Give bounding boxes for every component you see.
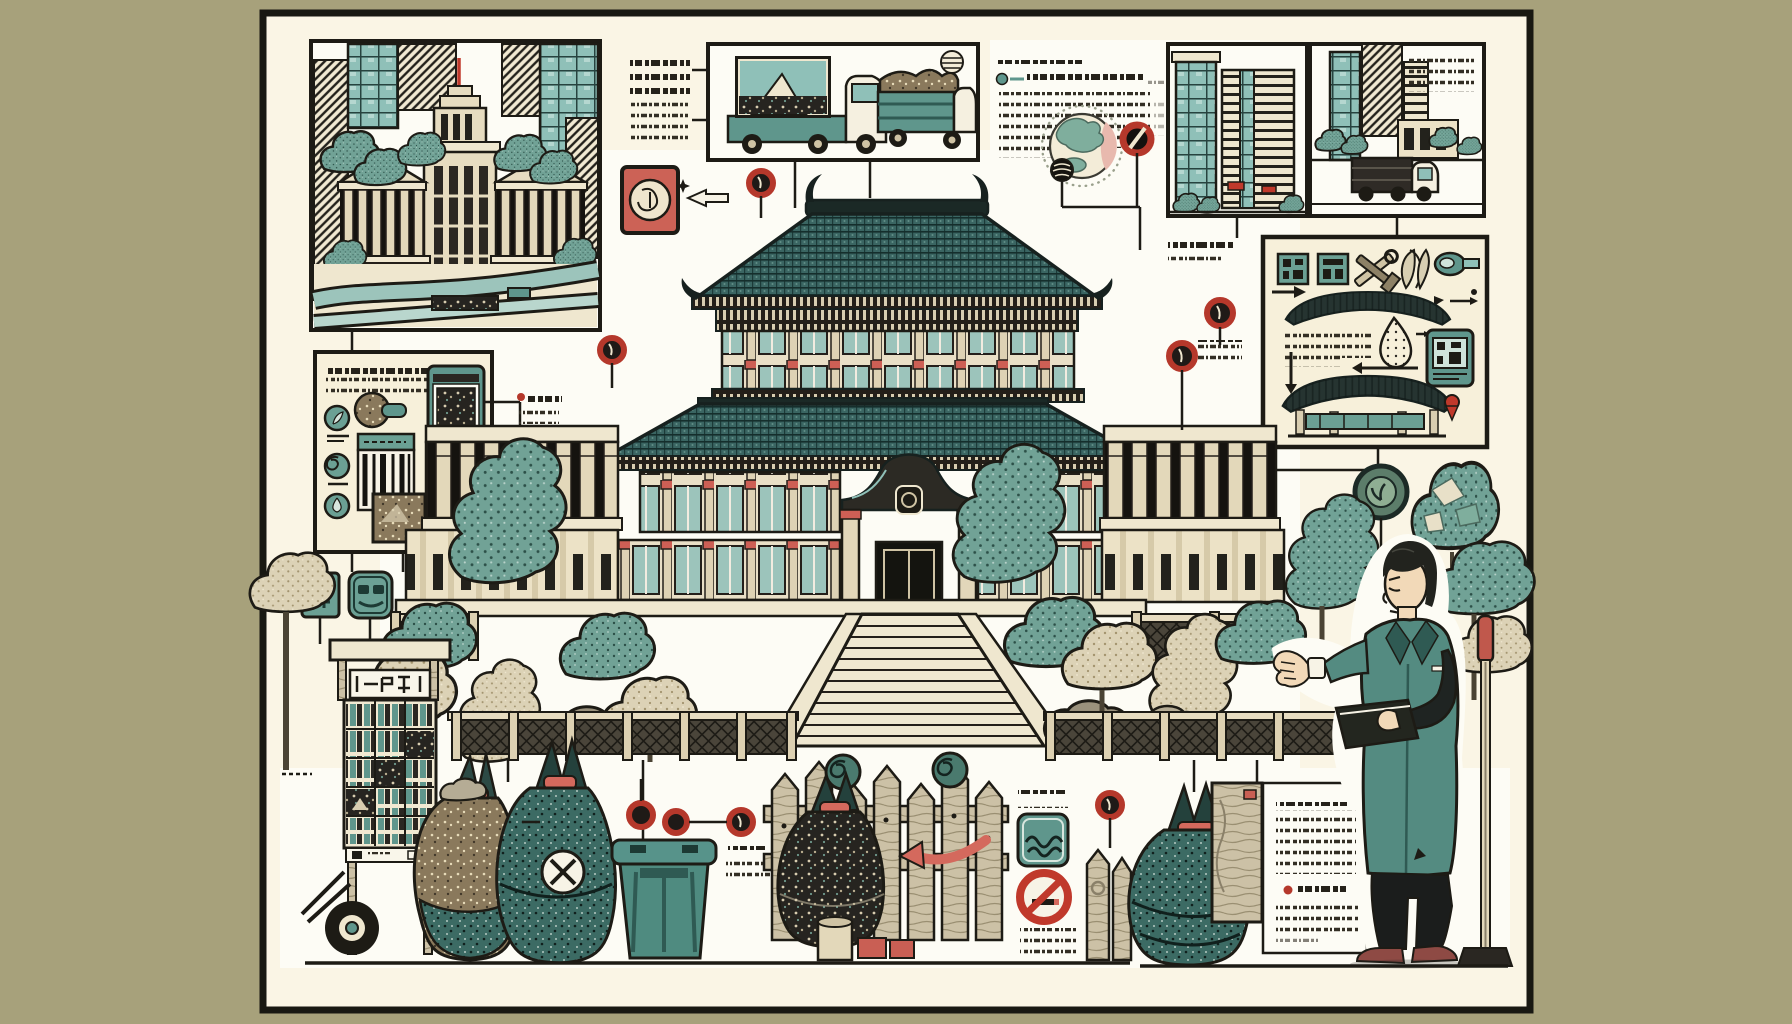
cuff: [1308, 658, 1325, 678]
picket-pair: [1087, 850, 1131, 960]
qr-device-icon: [1427, 330, 1473, 386]
poster-stage: Illustrated infographic poster: East Asi…: [0, 0, 1792, 1024]
leaf-circle-icon: [325, 406, 349, 441]
terrace-wall-left: [614, 540, 840, 600]
marker-ring-icon: [665, 811, 687, 833]
teal-stamp-icon: [1318, 254, 1348, 284]
lower-window-row-left: [640, 472, 840, 532]
office-buildings-panel: [1168, 44, 1307, 216]
panel-caption: [1408, 56, 1474, 92]
median-debris: [432, 296, 498, 310]
stand-base: [1458, 948, 1512, 966]
no-smoking-icon: [1020, 873, 1068, 921]
spiral-sign-icon: [349, 572, 392, 618]
roads: [314, 264, 598, 327]
crest-medallion: [896, 486, 922, 514]
teal-stamp-icon: [1278, 254, 1308, 284]
garbage-truck-panel: [708, 44, 978, 160]
kiosk-roof: [330, 640, 450, 660]
city-government-panel: [311, 41, 600, 330]
shop-sign: [1262, 186, 1276, 193]
cart-wheel: [325, 901, 379, 955]
red-tag: [1244, 790, 1256, 799]
process-caption: [1284, 328, 1372, 358]
street-truck-panel: [1310, 44, 1484, 216]
wave-sign-icon: [1018, 814, 1068, 866]
red-block: [858, 938, 886, 958]
text-card: [1263, 783, 1367, 953]
drop-circle-icon: [325, 494, 349, 518]
panel-heading: [1168, 238, 1234, 250]
small-truck: [1352, 158, 1438, 202]
bracket-frieze: [716, 309, 1078, 331]
right-wing: [1100, 426, 1284, 602]
red-bullet: [1284, 886, 1293, 895]
kiosk-signboard: [350, 670, 430, 698]
shop-sign: [1228, 182, 1244, 190]
refuse-heap: [880, 70, 958, 94]
red-block: [890, 940, 914, 958]
swirl-sun-icon: [941, 51, 963, 73]
poster-illustration: Illustrated infographic poster: East Asi…: [0, 0, 1792, 1024]
bus: [508, 288, 530, 298]
slash-circle-icon: [1123, 125, 1151, 153]
holding-hand: [1378, 710, 1400, 730]
teal-bullet: [997, 74, 1008, 85]
red-grip: [1478, 616, 1493, 662]
wheelie-bin-icon: [612, 840, 716, 958]
stump: [818, 917, 852, 960]
upper-window-row: [722, 331, 1074, 389]
wood-plank: [1212, 783, 1262, 922]
